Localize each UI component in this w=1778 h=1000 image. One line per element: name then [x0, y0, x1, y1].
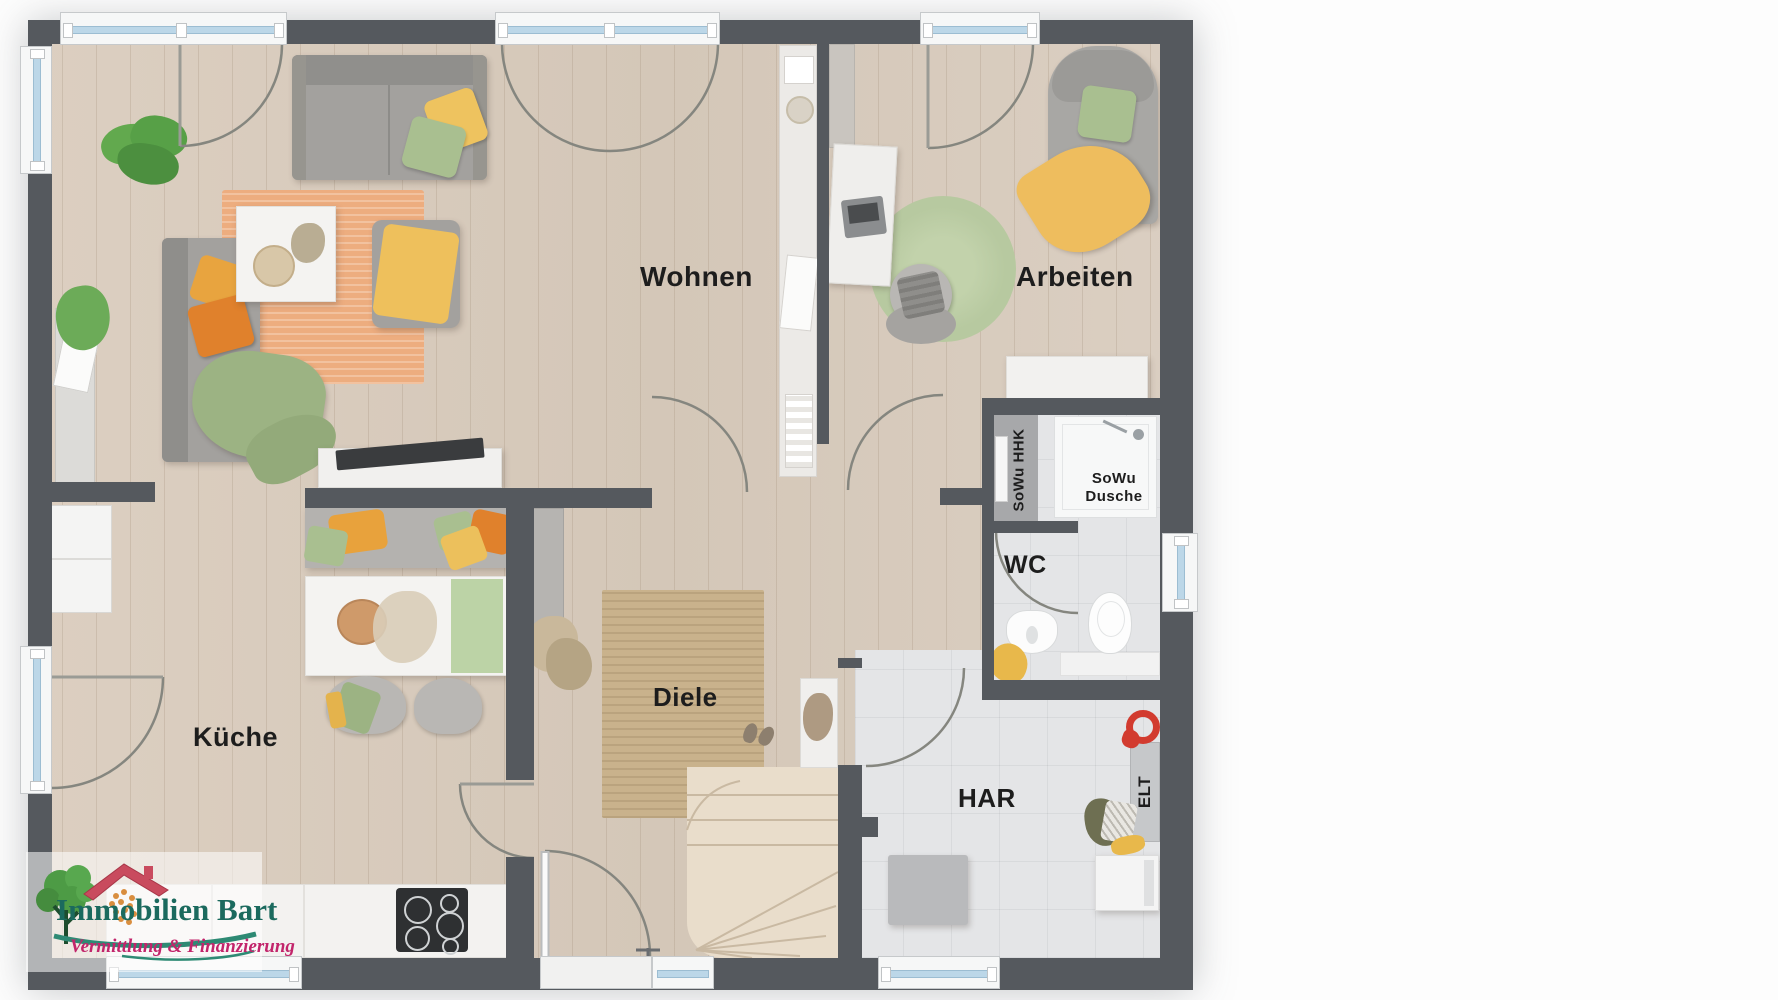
armchair-yellow-throw [372, 220, 460, 328]
window-bottom-utility [878, 956, 1000, 989]
wall-bath-top [982, 398, 1160, 415]
hall-console [800, 678, 838, 768]
washing-machine [1095, 855, 1159, 911]
shower-head-icon [1133, 429, 1144, 440]
wall-wc-partition [994, 521, 1078, 533]
wall-living-office [817, 44, 829, 444]
window-glass [33, 651, 41, 789]
room-label-living: Wohnen [640, 261, 753, 293]
pillow-green [303, 525, 349, 567]
agency-logo: Immobilien Bart Vermittlung & Finanzieru… [26, 852, 262, 972]
wall-kitchen-hall-lower [506, 857, 534, 958]
kitchen-chair-1 [326, 676, 406, 734]
room-label-utility: HAR [958, 783, 1016, 814]
cooktop [396, 888, 468, 952]
table-runner-green [451, 579, 503, 673]
window-right-wc [1162, 533, 1198, 612]
laptop [841, 196, 887, 239]
label-shower: SoWu Dusche [1082, 470, 1146, 506]
window-top-patio-double-door [495, 12, 720, 45]
window-glass [65, 26, 282, 34]
wall-hall-stub-right [940, 488, 983, 505]
window-top-living [60, 12, 287, 45]
label-electrical: ELT [1135, 776, 1155, 808]
office-wardrobe [829, 44, 855, 148]
laundry-pile [1085, 798, 1139, 852]
dried-flowers [373, 591, 437, 663]
room-label-kitchen: Küche [193, 722, 278, 753]
wall-hall-utility [838, 765, 862, 958]
staircase [687, 767, 838, 958]
desk-chair [886, 260, 956, 350]
wall-utility-pillar [855, 817, 878, 837]
toilet [1088, 592, 1132, 654]
window-glass [1177, 538, 1185, 607]
dried-sprigs [803, 693, 833, 741]
hose-reel-red [1122, 704, 1162, 750]
window-glass [657, 970, 709, 978]
kitchen-chair-2 [414, 678, 482, 734]
sofa-top [292, 55, 487, 180]
shelf-living-east [779, 45, 817, 477]
utility-box-gray [888, 855, 968, 925]
window-left-kitchen [20, 646, 52, 794]
wc-shelf [1060, 652, 1160, 676]
front-door-threshold [540, 956, 652, 989]
wall-kitchen-hall-upper [506, 508, 534, 780]
wall-living-kitchen-stub [28, 482, 155, 502]
window-glass [883, 970, 995, 978]
window-glass [925, 26, 1035, 34]
table-plant [291, 223, 325, 263]
kitchen-table [305, 576, 508, 676]
fridge-cabinet [48, 505, 112, 613]
wall-bath-left [982, 415, 994, 683]
wall-living-kitchen-main [305, 488, 652, 508]
logo-tagline-text: Vermittlung & Finanzierung [70, 936, 295, 958]
kitchen-bench [305, 508, 512, 568]
wall-exterior-right [1160, 20, 1193, 990]
wall-hall-utility-top [838, 658, 862, 668]
wall-bath-bottom [982, 680, 1160, 700]
room-label-hallway: Diele [653, 682, 718, 713]
window-glass [33, 51, 41, 169]
tray [253, 245, 295, 287]
label-water-heater: SoWu HHK [1011, 429, 1028, 512]
office-sideboard [1006, 356, 1148, 402]
pillow-green [1077, 84, 1138, 143]
throw-yellow [372, 223, 460, 325]
coffee-table [236, 206, 336, 302]
room-label-wc: WC [1004, 551, 1047, 580]
pillow-orange [186, 293, 255, 358]
logo-brand-text: Immobilien Bart [56, 892, 277, 928]
room-label-office: Arbeiten [1016, 261, 1134, 293]
window-left-living [20, 46, 52, 174]
window-bottom-sidelight [652, 956, 714, 989]
floor-plan-canvas: Wohnen Arbeiten Küche Diele WC HAR ELT S… [0, 0, 1778, 1000]
plant-large [95, 114, 195, 190]
window-top-office-door [920, 12, 1040, 45]
